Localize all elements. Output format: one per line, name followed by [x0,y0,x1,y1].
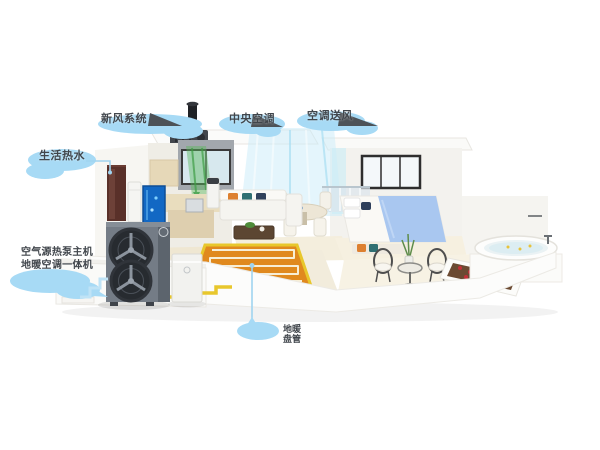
callout-ac-supply: 空调送风 [302,110,358,122]
bedroom-window [362,156,420,188]
callout-fresh-air: 新风系统 [99,113,149,125]
cutaway-artwork [0,0,600,450]
coffee-table [234,222,274,239]
callout-heat-pump-line1: 空气源热泵主机 [12,246,102,259]
water-purifier [207,178,219,208]
callout-heat-pump-line2: 地暖空调一体机 [12,259,102,272]
brand-logo-icon [159,228,168,237]
fan-bottom [111,261,151,301]
callout-hot-water: 生活热水 [34,150,90,162]
callout-floor-heating: 地暖盘管 [281,324,303,344]
slim-white-unit [128,182,141,222]
callout-central-ac: 中央空调 [224,113,280,125]
heat-pump-unit [98,222,170,310]
sofa-set [220,190,302,226]
callout-heat-pump: 空气源热泵主机 地暖空调一体机 [12,246,102,272]
buffer-tank [168,254,206,308]
house-system-illustration: 新风系统 中央空调 空调送风 生活热水 空气源热泵主机 地暖空调一体机 地暖盘管 [0,0,600,450]
